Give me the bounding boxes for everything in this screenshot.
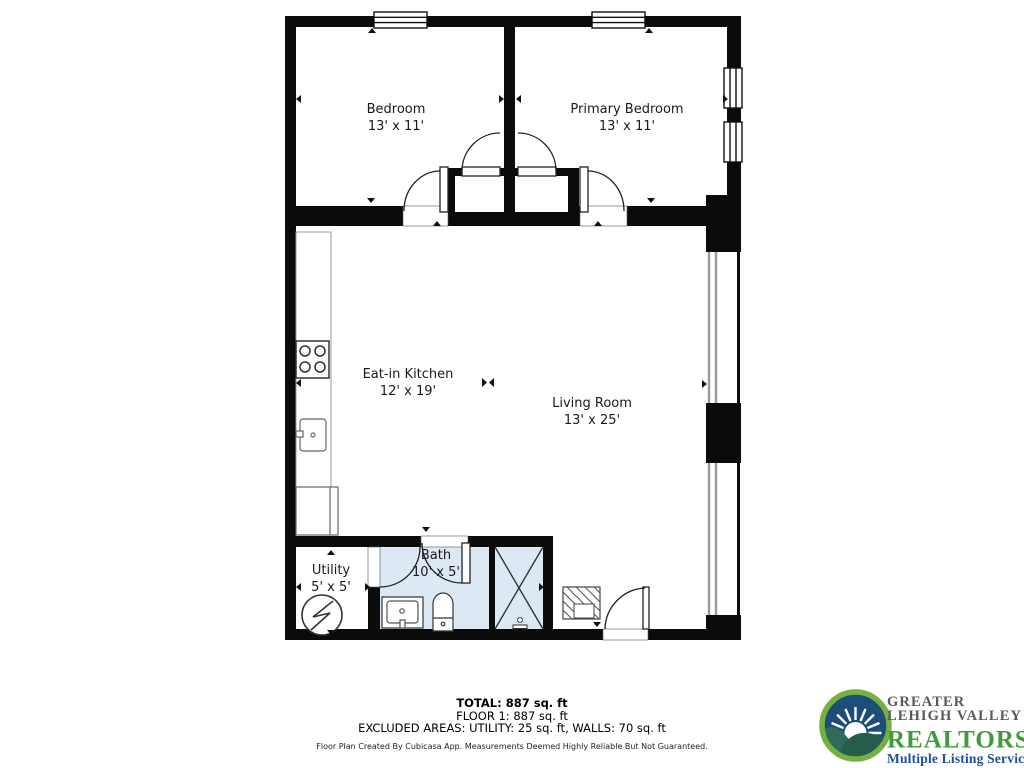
room-label-primary-bedroom: Primary Bedroom 13' x 11' — [570, 101, 683, 135]
primary-side-window-2-icon — [724, 122, 742, 162]
bedroom-window-icon — [374, 12, 427, 28]
entry-door-icon — [605, 587, 649, 629]
logo-tagline: Multiple Listing Service — [887, 752, 1024, 766]
bedroom-door-icon — [404, 167, 448, 212]
water-heater-icon — [302, 595, 342, 635]
stove-icon — [296, 341, 329, 378]
room-label-bedroom: Bedroom 13' x 11' — [367, 101, 426, 135]
glvr-logo-icon — [817, 687, 894, 764]
primary-side-window-1-icon — [724, 68, 742, 108]
vanity-sink-icon — [382, 597, 423, 628]
primary-bedroom-door-icon — [580, 167, 624, 212]
glvr-logo-text: GREATER LEHIGH VALLEY REALTORS® Multiple… — [887, 695, 1024, 766]
closet-door-left-icon — [462, 133, 500, 176]
kitchen-sink-icon — [296, 419, 326, 451]
floor-plan-page: Bedroom 13' x 11' Primary Bedroom 13' x … — [0, 0, 1024, 768]
glvr-logo: GREATER LEHIGH VALLEY REALTORS® Multiple… — [817, 687, 1024, 765]
logo-line-lehigh-valley: LEHIGH VALLEY — [887, 709, 1024, 723]
windows — [374, 12, 742, 162]
primary-bedroom-window-icon — [592, 12, 645, 28]
room-label-living-room: Living Room 13' x 25' — [552, 395, 632, 429]
logo-line-realtors: REALTORS® — [887, 723, 1024, 752]
logo-line-greater: GREATER — [887, 695, 1024, 709]
floor-plan-drawing — [0, 0, 1024, 768]
toilet-icon — [433, 593, 453, 631]
room-label-eat-in-kitchen: Eat-in Kitchen 12' x 19' — [363, 366, 454, 400]
fridge-icon — [296, 487, 338, 535]
room-label-utility: Utility 5' x 5' — [311, 562, 351, 596]
closet-door-right-icon — [518, 133, 556, 176]
camera-marker-icon — [482, 378, 494, 387]
room-label-bath: Bath 10' x 5' — [412, 547, 460, 581]
